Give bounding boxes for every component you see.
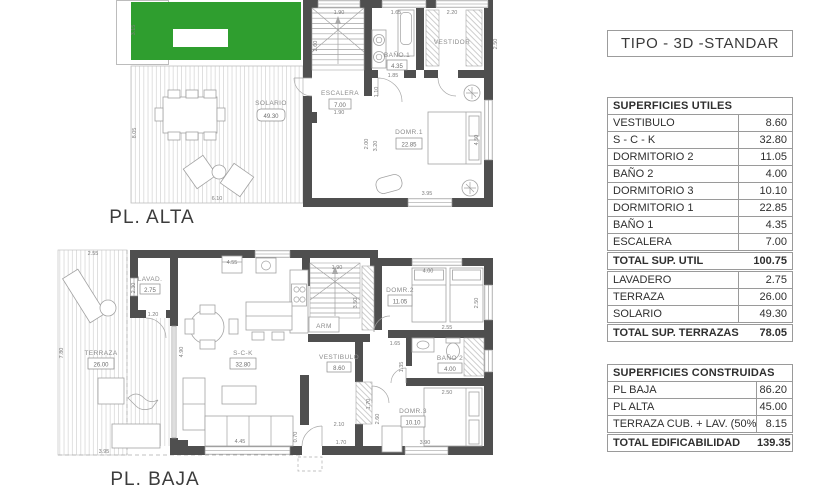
room-label: ESCALERA bbox=[321, 90, 359, 97]
svg-text:2.20: 2.20 bbox=[447, 10, 458, 16]
svg-text:1.35: 1.35 bbox=[399, 362, 405, 373]
svg-text:4.55: 4.55 bbox=[227, 260, 238, 266]
beds-dorm2 bbox=[412, 268, 483, 322]
svg-text:22.85: 22.85 bbox=[401, 143, 417, 149]
svg-text:26.00: 26.00 bbox=[93, 363, 109, 369]
entrance-step-dashed bbox=[298, 457, 322, 471]
stool-icon bbox=[272, 332, 284, 340]
svg-text:2.50: 2.50 bbox=[474, 298, 480, 309]
bathroom-1-fixtures bbox=[372, 10, 414, 68]
room-label: VESTIBULO bbox=[319, 354, 359, 361]
svg-text:10.10: 10.10 bbox=[405, 421, 421, 427]
svg-text:2.50: 2.50 bbox=[493, 39, 499, 50]
table-row: S - C - K32.80 bbox=[607, 131, 793, 149]
svg-text:2.50: 2.50 bbox=[442, 390, 453, 396]
svg-text:1.90: 1.90 bbox=[332, 265, 343, 271]
plan-baja: ARM bbox=[58, 250, 493, 490]
room-label: SOLARIO bbox=[255, 100, 287, 107]
svg-text:1.90: 1.90 bbox=[334, 10, 345, 16]
stairs bbox=[312, 8, 364, 70]
table-row: BAÑO 24.00 bbox=[607, 165, 793, 183]
svg-text:3.90: 3.90 bbox=[420, 440, 431, 446]
svg-text:3.50: 3.50 bbox=[353, 298, 359, 309]
table-row: DORMITORIO 211.05 bbox=[607, 148, 793, 166]
side-table-icon bbox=[100, 300, 116, 316]
kitchen-sink-icon bbox=[256, 258, 276, 273]
chaise-icon bbox=[374, 173, 403, 195]
svg-text:3.20: 3.20 bbox=[373, 141, 379, 152]
svg-text:1.20: 1.20 bbox=[148, 312, 159, 318]
svg-text:1.90: 1.90 bbox=[334, 110, 345, 116]
table-row: BAÑO 14.35 bbox=[607, 216, 793, 234]
room-label: BAÑO.1 bbox=[384, 50, 410, 59]
table-header: SUPERFICIES UTILES bbox=[607, 97, 793, 115]
svg-text:1.85: 1.85 bbox=[388, 73, 399, 79]
svg-text:6.10: 6.10 bbox=[212, 196, 223, 202]
plan-alta: SOLARIO 49.30 ESCALERA 7.00 BAÑO.1 4.35 … bbox=[109, 0, 499, 228]
svg-text:4.35: 4.35 bbox=[391, 64, 403, 70]
planter bbox=[98, 378, 124, 404]
round-dining-table bbox=[185, 305, 238, 349]
dresser-icon bbox=[382, 426, 402, 452]
table-row-total-util: TOTAL SUP. UTIL100.75 bbox=[607, 252, 793, 270]
summary-panel: TIPO - 3D -STANDAR SUPERFICIES UTILES VE… bbox=[607, 30, 793, 452]
svg-text:32.80: 32.80 bbox=[235, 363, 251, 369]
bench bbox=[112, 424, 160, 448]
svg-text:2.60: 2.60 bbox=[313, 41, 319, 52]
floorplans-drawing: SOLARIO 49.30 ESCALERA 7.00 BAÑO.1 4.35 … bbox=[0, 0, 600, 492]
dining-table bbox=[155, 90, 225, 140]
svg-text:11.05: 11.05 bbox=[393, 300, 408, 306]
plan-type-label: TIPO - 3D -STANDAR bbox=[621, 35, 779, 52]
stair-side-wall bbox=[362, 266, 374, 330]
room-label: DOMR.2 bbox=[386, 287, 414, 294]
superficies-construidas-table: SUPERFICIES CONSTRUIDAS PL BAJA86.20 PL … bbox=[607, 364, 793, 452]
table-row: VESTIBULO8.60 bbox=[607, 114, 793, 132]
svg-text:49.30: 49.30 bbox=[263, 114, 279, 120]
svg-text:2.55: 2.55 bbox=[442, 325, 453, 331]
plan-type-title: TIPO - 3D -STANDAR bbox=[607, 30, 793, 57]
room-label: S-C-K bbox=[233, 350, 253, 357]
svg-text:4.45: 4.45 bbox=[235, 439, 246, 445]
svg-text:4.50: 4.50 bbox=[474, 135, 480, 146]
table-row-total-edificabilidad: TOTAL EDIFICABILIDAD139.35 bbox=[607, 434, 793, 452]
plant-icon bbox=[462, 180, 478, 196]
green-roof-skylight bbox=[173, 29, 228, 47]
table-row: SOLARIO49.30 bbox=[607, 305, 793, 323]
svg-text:1.70: 1.70 bbox=[366, 399, 372, 410]
table-row: ESCALERA7.00 bbox=[607, 233, 793, 251]
room-label: VESTIDOR bbox=[434, 39, 470, 46]
svg-text:1.65: 1.65 bbox=[390, 341, 401, 347]
table-row: DORMITORIO 310.10 bbox=[607, 182, 793, 200]
svg-text:3.95: 3.95 bbox=[99, 449, 110, 455]
solario-deck bbox=[131, 66, 303, 203]
room-label: DOMR.1 bbox=[395, 129, 423, 136]
plan-baja-title: PL. BAJA bbox=[110, 469, 199, 490]
svg-text:2.00: 2.00 bbox=[364, 139, 370, 150]
wardrobes bbox=[426, 10, 482, 66]
room-label: TERRAZA bbox=[84, 350, 117, 357]
plan-alta-title: PL. ALTA bbox=[109, 207, 194, 228]
sofa bbox=[183, 378, 293, 446]
table-row: TERRAZA26.00 bbox=[607, 288, 793, 306]
shower bbox=[464, 338, 484, 376]
svg-text:7.80: 7.80 bbox=[59, 348, 65, 359]
svg-text:3.95: 3.95 bbox=[422, 191, 433, 197]
table-row: PL ALTA45.00 bbox=[607, 398, 793, 416]
svg-text:8.60: 8.60 bbox=[333, 366, 345, 372]
table-row: TERRAZA CUB. + LAV. (50%)8.15 bbox=[607, 415, 793, 433]
svg-text:1.70: 1.70 bbox=[336, 440, 347, 446]
plant-icon bbox=[464, 85, 480, 101]
svg-text:4.00: 4.00 bbox=[423, 269, 434, 275]
svg-text:4.90: 4.90 bbox=[179, 347, 185, 358]
svg-text:3.15: 3.15 bbox=[131, 25, 137, 36]
svg-text:2.75: 2.75 bbox=[144, 288, 156, 294]
room-label: LAVAD. bbox=[138, 276, 163, 283]
hob-icon bbox=[292, 284, 307, 306]
svg-text:2.30: 2.30 bbox=[131, 283, 137, 294]
table-row: DORMITORIO 122.85 bbox=[607, 199, 793, 217]
armario-closet: ARM bbox=[309, 317, 339, 332]
table-row: PL BAJA86.20 bbox=[607, 381, 793, 399]
room-label: DOMR.3 bbox=[399, 408, 427, 415]
svg-text:4.00: 4.00 bbox=[444, 367, 456, 373]
room-label: BAÑO 2 bbox=[437, 353, 463, 362]
floorplan-sheet: SOLARIO 49.30 ESCALERA 7.00 BAÑO.1 4.35 … bbox=[0, 0, 819, 492]
svg-text:0.70: 0.70 bbox=[293, 432, 299, 443]
room-label: ARM bbox=[316, 323, 332, 330]
svg-text:1.65: 1.65 bbox=[391, 10, 402, 16]
svg-text:1.10: 1.10 bbox=[374, 87, 380, 98]
sink-icon bbox=[374, 52, 385, 63]
table-row: LAVADERO2.75 bbox=[607, 271, 793, 289]
vanity-counter bbox=[412, 338, 434, 352]
toilet-icon bbox=[446, 338, 460, 343]
table-row-total-terrazas: TOTAL SUP. TERRAZAS78.05 bbox=[607, 324, 793, 342]
svg-text:2.55: 2.55 bbox=[88, 251, 99, 257]
side-table-icon bbox=[212, 165, 226, 179]
superficies-utiles-table: SUPERFICIES UTILES VESTIBULO8.60 S - C -… bbox=[607, 97, 793, 342]
svg-text:8.05: 8.05 bbox=[132, 128, 138, 139]
sink-icon bbox=[374, 35, 385, 46]
svg-text:2.10: 2.10 bbox=[334, 422, 345, 428]
svg-text:2.60: 2.60 bbox=[375, 414, 381, 425]
stool-icon bbox=[252, 332, 264, 340]
coffee-table-icon bbox=[222, 386, 256, 404]
svg-text:7.00: 7.00 bbox=[334, 103, 346, 109]
table-header: SUPERFICIES CONSTRUIDAS bbox=[607, 364, 793, 382]
